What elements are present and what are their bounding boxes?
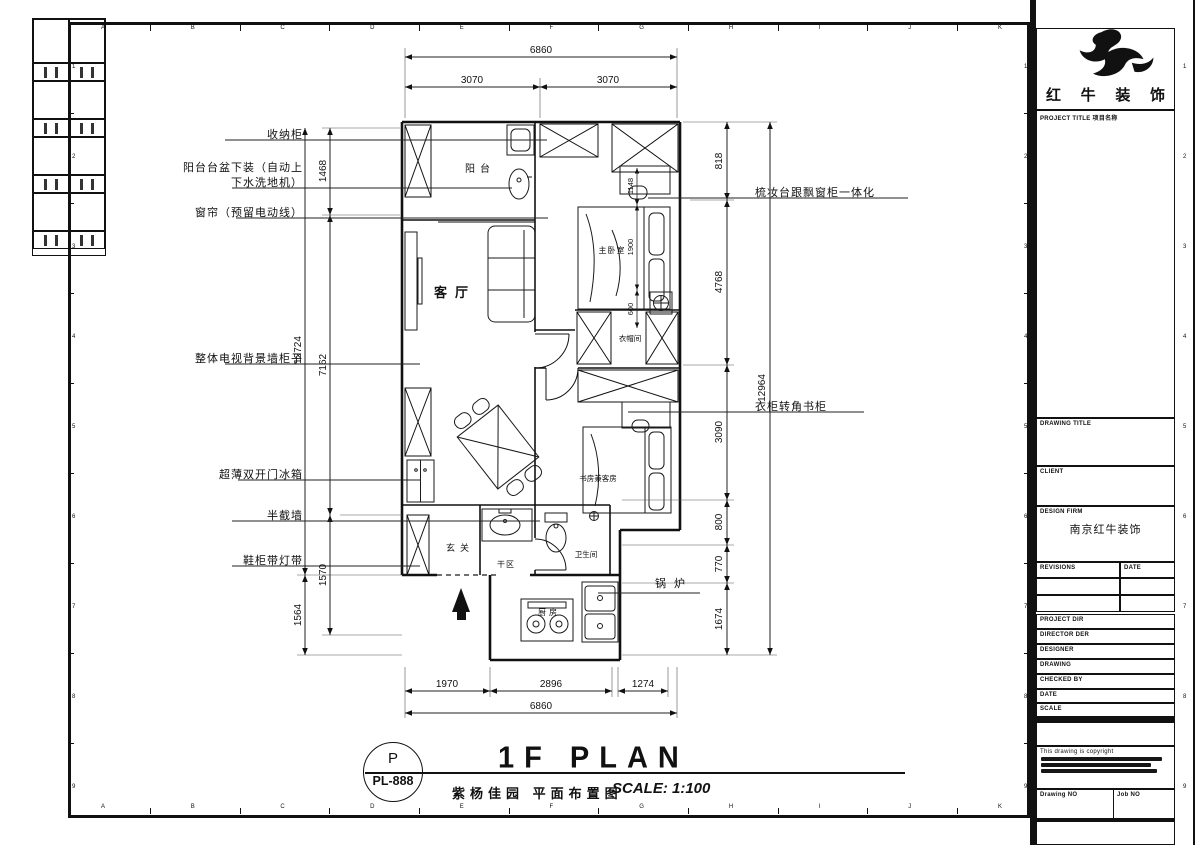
dim-right-3: 3090	[714, 420, 725, 443]
dim-left-1: 1468	[318, 159, 329, 182]
room-label-cloak: 衣帽间	[619, 333, 642, 343]
door-arcs	[535, 334, 578, 570]
logo-box: 红牛装饰	[1036, 28, 1175, 110]
field-label: DIRECTOR DER	[1037, 630, 1174, 638]
dim-right-6: 1674	[714, 607, 725, 630]
dim-left-3: 1570	[318, 563, 329, 586]
room-labels: 阳台 客厅 主卧室 衣帽间 书房兼客房 干区 卫生间 玄关 厨房 锅炉	[434, 162, 693, 617]
copyright-box: This drawing is copyright	[1036, 746, 1175, 789]
sofa	[488, 226, 535, 322]
field-label: SCALE	[1037, 704, 1174, 712]
field-label: PROJECT DIR	[1037, 615, 1174, 623]
toilet	[545, 513, 567, 522]
drawing-title-label: DRAWING TITLE	[1037, 419, 1174, 427]
revision-row-cell	[1036, 578, 1120, 595]
callout-half-wall: 半截墙	[133, 507, 303, 523]
revision-row-cell	[1120, 595, 1175, 612]
room-label-master: 主卧室	[599, 245, 626, 255]
field-project-dir: PROJECT DIR	[1036, 614, 1175, 629]
company-char: 饰	[1150, 84, 1165, 105]
design-firm-box: DESIGN FIRM 南京红牛装饰	[1036, 506, 1175, 562]
callout-balcony-basin-1: 阳台台盆下装（自动上	[133, 159, 303, 175]
dim-right-2: 4768	[714, 270, 725, 293]
dim-left-4: 1564	[293, 603, 304, 626]
drawing-main-title: 1F PLAN	[498, 741, 689, 776]
room-label-living: 客厅	[434, 285, 476, 300]
field-date: DATE	[1036, 689, 1175, 703]
company-name-text: 红牛装饰	[1046, 84, 1165, 105]
number-box: Drawing NO Job NO	[1036, 789, 1175, 819]
field-label: DATE	[1037, 690, 1174, 698]
titleblock-spacer-box	[1036, 722, 1175, 746]
dim-bottom-1: 1970	[436, 679, 459, 690]
dining-table	[447, 392, 548, 501]
room-label-foyer: 玄关	[446, 542, 474, 553]
revisions-date-label: DATE	[1121, 563, 1174, 571]
plan-interior-walls	[402, 122, 680, 575]
drawing-tag-letter: P	[364, 750, 422, 767]
dim-bottom-3: 1274	[632, 679, 655, 690]
design-firm-label: DESIGN FIRM	[1037, 507, 1174, 515]
drawing-tag-number: PL-888	[364, 774, 422, 788]
drawing-title-box: DRAWING TITLE	[1036, 418, 1175, 466]
revision-row-cell	[1120, 578, 1175, 595]
field-scale: SCALE	[1036, 703, 1175, 717]
dim-bottom-total: 6860	[530, 701, 553, 712]
tv-cabinet	[405, 232, 417, 330]
drawing-subtitle: 紫杨佳园 平面布置图	[452, 783, 623, 802]
field-label: DRAWING	[1037, 660, 1174, 668]
study-desk	[622, 402, 670, 428]
company-char: 装	[1115, 84, 1130, 105]
client-label: CLIENT	[1037, 467, 1174, 475]
callout-shoe-cabinet: 鞋柜带灯带	[133, 552, 303, 568]
extension-lines	[297, 48, 777, 718]
drawing-sheet: AABBCCDDEEFFGGHHIIJJKK111222333444555666…	[0, 0, 1200, 845]
field-checked-by: CHECKED BY	[1036, 674, 1175, 689]
drawing-no-label: Drawing NO	[1037, 790, 1113, 798]
dim-right-5: 770	[714, 555, 725, 572]
copyright-smudge	[1041, 763, 1151, 767]
copyright-smudge	[1041, 769, 1157, 773]
field-designer: DESIGNER	[1036, 644, 1175, 659]
callout-boiler: 锅炉	[655, 577, 693, 590]
dim-top-total: 6860	[530, 45, 553, 56]
kitchen-sink	[582, 582, 618, 642]
dim-left-2: 7162	[318, 353, 329, 376]
copyright-text: This drawing is copyright	[1037, 747, 1174, 755]
plan-outer-walls	[402, 122, 680, 660]
callout-curtain: 窗帘（预留电动线）	[133, 204, 303, 220]
project-title-box: PROJECT TITLE 项目名称	[1036, 110, 1175, 418]
revisions-label: REVISIONS	[1037, 563, 1119, 571]
field-label: CHECKED BY	[1037, 675, 1174, 683]
callout-corner-bookcase: 衣柜转角书柜	[755, 398, 827, 414]
company-name: 红牛装饰	[1037, 84, 1174, 105]
revision-row-cell	[1036, 595, 1120, 612]
callout-fridge: 超薄双开门冰箱	[133, 466, 303, 482]
company-char: 牛	[1081, 84, 1096, 105]
dim-right-1: 818	[714, 152, 725, 169]
titleblock-tail-box	[1036, 819, 1175, 845]
dim-top-right: 3070	[597, 75, 620, 86]
room-label-kitchen: 厨房	[538, 607, 560, 617]
project-title-label: PROJECT TITLE 项目名称	[1037, 111, 1174, 122]
callout-dressing-table: 梳妆台跟飘窗柜一体化	[755, 184, 875, 200]
room-label-balcony: 阳台	[465, 162, 495, 175]
dim-bed-2: 1900	[626, 239, 635, 256]
callout-storage-cabinet: 收纳柜	[133, 126, 303, 142]
revisions-table: REVISIONS DATE	[1036, 562, 1175, 614]
stove	[521, 599, 573, 641]
callout-tv-wall: 整体电视背景墙柜子	[133, 350, 303, 366]
callout-balcony-basin-2: 下水洗地机）	[133, 174, 303, 190]
field-label: DESIGNER	[1037, 645, 1174, 653]
dim-bottom-2: 2896	[540, 679, 563, 690]
balcony-basin	[509, 169, 529, 199]
room-label-dry: 干区	[497, 560, 515, 569]
field-director: DIRECTOR DER	[1036, 629, 1175, 644]
furniture	[405, 125, 672, 642]
job-no-label: Job NO	[1114, 790, 1174, 798]
dim-bed-1: 1148	[626, 178, 635, 194]
copyright-smudge	[1041, 757, 1162, 761]
client-box: CLIENT	[1036, 466, 1175, 506]
drawing-scale: SCALE: 1:100	[612, 780, 710, 797]
dim-right-4: 800	[714, 513, 725, 530]
rednbull-logo-icon	[1037, 29, 1174, 79]
field-drawing: DRAWING	[1036, 659, 1175, 674]
dim-top-left: 3070	[461, 75, 484, 86]
company-char: 红	[1046, 84, 1061, 105]
title-block: 红牛装饰 PROJECT TITLE 项目名称 DRAWING TITLE CL…	[1036, 28, 1175, 845]
room-label-study: 书房兼客房	[579, 473, 617, 483]
entry-arrow-icon	[452, 588, 470, 620]
dim-bed-3: 600	[626, 303, 635, 316]
design-firm-value: 南京红牛装饰	[1037, 521, 1174, 537]
room-label-bath: 卫生间	[575, 549, 598, 559]
